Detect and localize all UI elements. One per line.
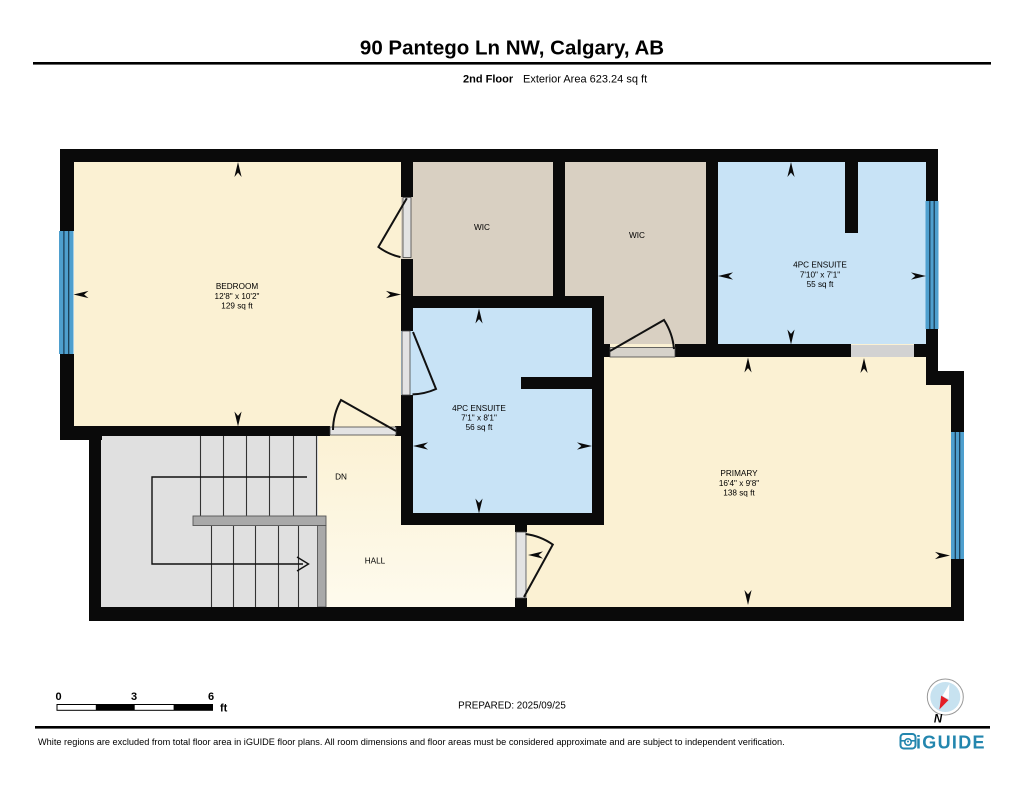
svg-text:BEDROOM: BEDROOM: [216, 282, 258, 291]
svg-text:iGUIDE: iGUIDE: [916, 733, 986, 753]
svg-text:12'8" x 10'2": 12'8" x 10'2": [215, 292, 260, 301]
svg-text:6: 6: [208, 691, 214, 703]
svg-text:4PC ENSUITE: 4PC ENSUITE: [793, 261, 847, 270]
svg-text:PRIMARY: PRIMARY: [720, 469, 758, 478]
svg-text:PREPARED: 2025/09/25: PREPARED: 2025/09/25: [458, 701, 566, 712]
svg-text:0: 0: [55, 691, 61, 703]
svg-text:WIC: WIC: [629, 231, 645, 240]
svg-text:White regions are excluded fro: White regions are excluded from total fl…: [38, 737, 785, 747]
svg-text:N: N: [934, 714, 943, 726]
svg-text:7'1" x 8'1": 7'1" x 8'1": [461, 414, 497, 423]
svg-text:ft: ft: [220, 703, 228, 715]
svg-text:129 sq ft: 129 sq ft: [221, 302, 253, 311]
svg-text:3: 3: [131, 691, 137, 703]
svg-text:WIC: WIC: [474, 223, 490, 232]
svg-text:55 sq ft: 55 sq ft: [807, 280, 835, 289]
svg-text:4PC ENSUITE: 4PC ENSUITE: [452, 404, 506, 413]
svg-text:HALL: HALL: [365, 557, 386, 566]
svg-text:2nd Floor: 2nd Floor: [463, 74, 514, 86]
svg-text:DN: DN: [335, 473, 347, 482]
svg-text:138 sq ft: 138 sq ft: [723, 489, 755, 498]
svg-text:Exterior Area 623.24 sq ft: Exterior Area 623.24 sq ft: [523, 74, 647, 86]
svg-text:56 sq ft: 56 sq ft: [466, 423, 494, 432]
svg-text:90 Pantego Ln NW, Calgary, AB: 90 Pantego Ln NW, Calgary, AB: [360, 37, 664, 60]
svg-text:16'4" x 9'8": 16'4" x 9'8": [719, 479, 759, 488]
svg-text:7'10" x 7'1": 7'10" x 7'1": [800, 271, 840, 280]
